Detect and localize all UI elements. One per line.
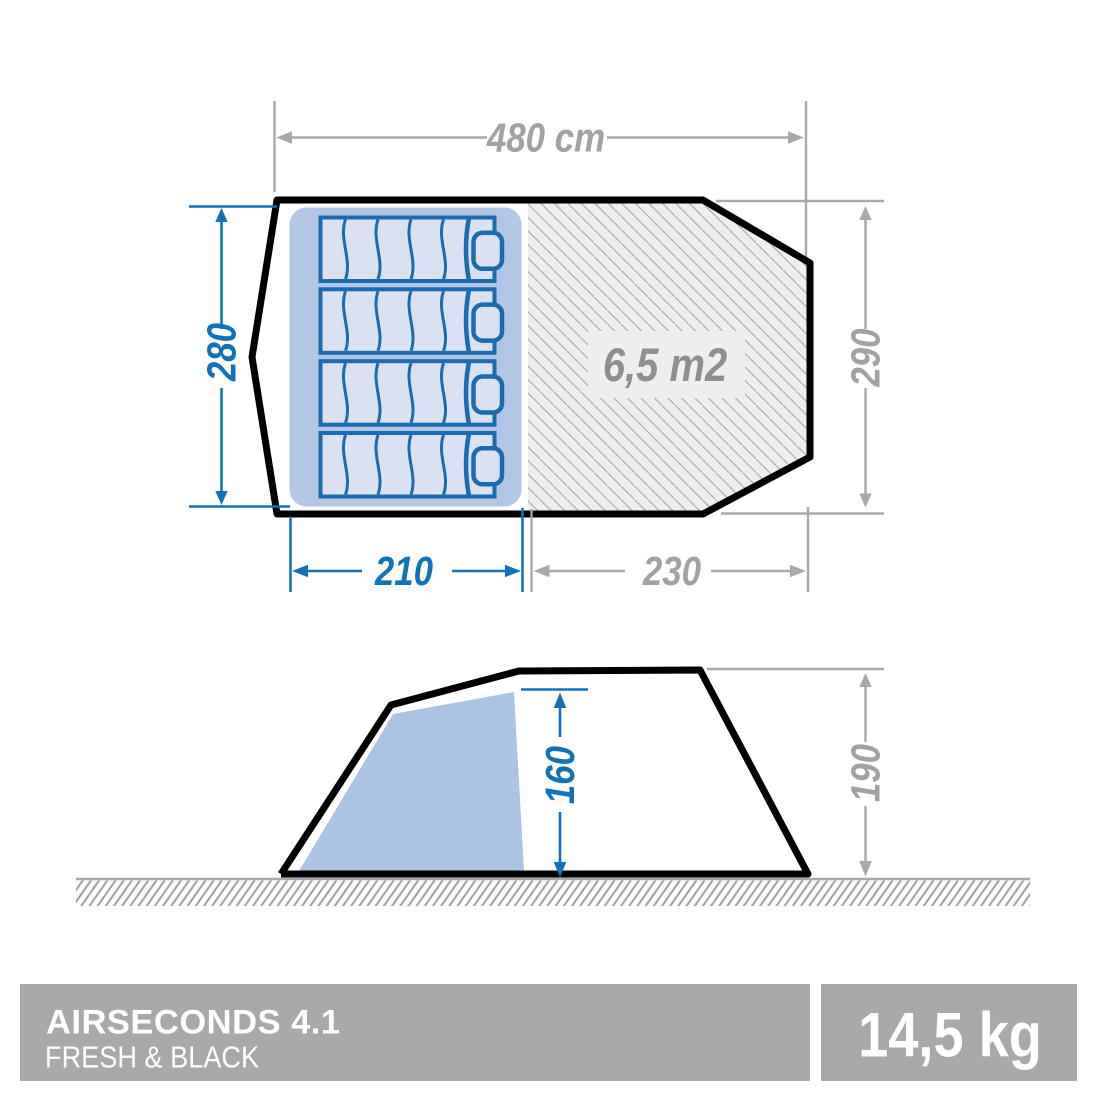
svg-text:190: 190 xyxy=(844,744,889,802)
svg-text:290: 290 xyxy=(844,328,889,387)
svg-text:AIRSECONDS 4.1: AIRSECONDS 4.1 xyxy=(46,1004,341,1042)
svg-text:160: 160 xyxy=(538,746,583,804)
svg-text:14,5 kg: 14,5 kg xyxy=(858,1001,1042,1071)
svg-text:6,5 m2: 6,5 m2 xyxy=(603,340,727,392)
svg-text:280: 280 xyxy=(200,323,245,382)
svg-text:230: 230 xyxy=(642,549,701,594)
svg-text:480 cm: 480 cm xyxy=(486,116,605,161)
svg-text:210: 210 xyxy=(374,549,433,594)
svg-text:FRESH & BLACK: FRESH & BLACK xyxy=(45,1041,259,1075)
